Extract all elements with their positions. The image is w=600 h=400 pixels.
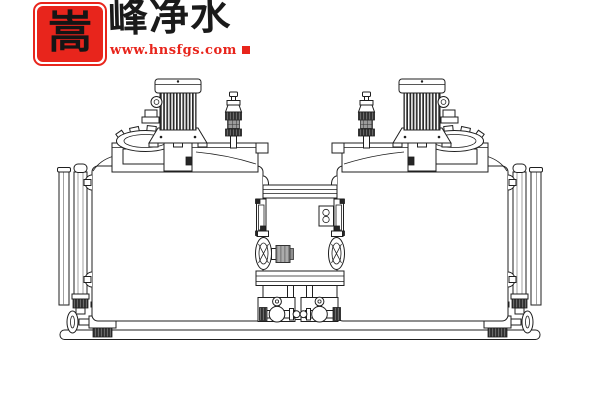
logo-seal-background: 嵩 xyxy=(37,6,103,62)
center-section xyxy=(256,176,345,322)
pump-top-fitting xyxy=(332,231,343,237)
right-tank-unit xyxy=(332,79,543,337)
ball-valve-ring xyxy=(300,311,307,318)
ball-valve-ring xyxy=(293,311,300,318)
bracket-bolt xyxy=(340,199,345,204)
red-square-icon xyxy=(242,46,250,54)
logo-seal-character: 嵩 xyxy=(48,11,92,55)
platform xyxy=(256,271,344,286)
connecting-bridge xyxy=(263,185,337,198)
skid-base xyxy=(60,320,540,340)
logo-seal: 嵩 xyxy=(33,2,107,66)
brand-logo: 嵩 峰净水 www.hnsfgs.com xyxy=(30,1,260,63)
brand-text: 峰净水 xyxy=(107,0,231,39)
pump-motor xyxy=(276,246,290,263)
pump-top-fitting xyxy=(258,231,269,237)
ball-valve-union xyxy=(260,308,268,321)
pump-top-stem xyxy=(335,226,340,231)
ball-valve-union xyxy=(333,308,341,321)
support-leg xyxy=(307,286,313,298)
pump-motor-endcap xyxy=(290,249,294,260)
website-url: www.hnsfgs.com xyxy=(110,43,237,58)
ball-valve-left-handle xyxy=(273,297,282,306)
ball-valve-right-body xyxy=(312,306,328,322)
product-drawing-page: 嵩 峰净水 www.hnsfgs.com xyxy=(0,0,600,400)
support-leg xyxy=(288,286,294,298)
ball-valve-right-handle xyxy=(315,297,324,306)
left-tank-unit xyxy=(58,79,269,337)
pump-top-stem xyxy=(261,226,266,231)
pump-coupling xyxy=(272,249,277,260)
skid-rail-lower xyxy=(60,330,540,340)
website-text: www.hnsfgs.com xyxy=(110,43,250,58)
bracket-bolt xyxy=(256,199,261,204)
ball-valve-left-body xyxy=(269,306,285,322)
